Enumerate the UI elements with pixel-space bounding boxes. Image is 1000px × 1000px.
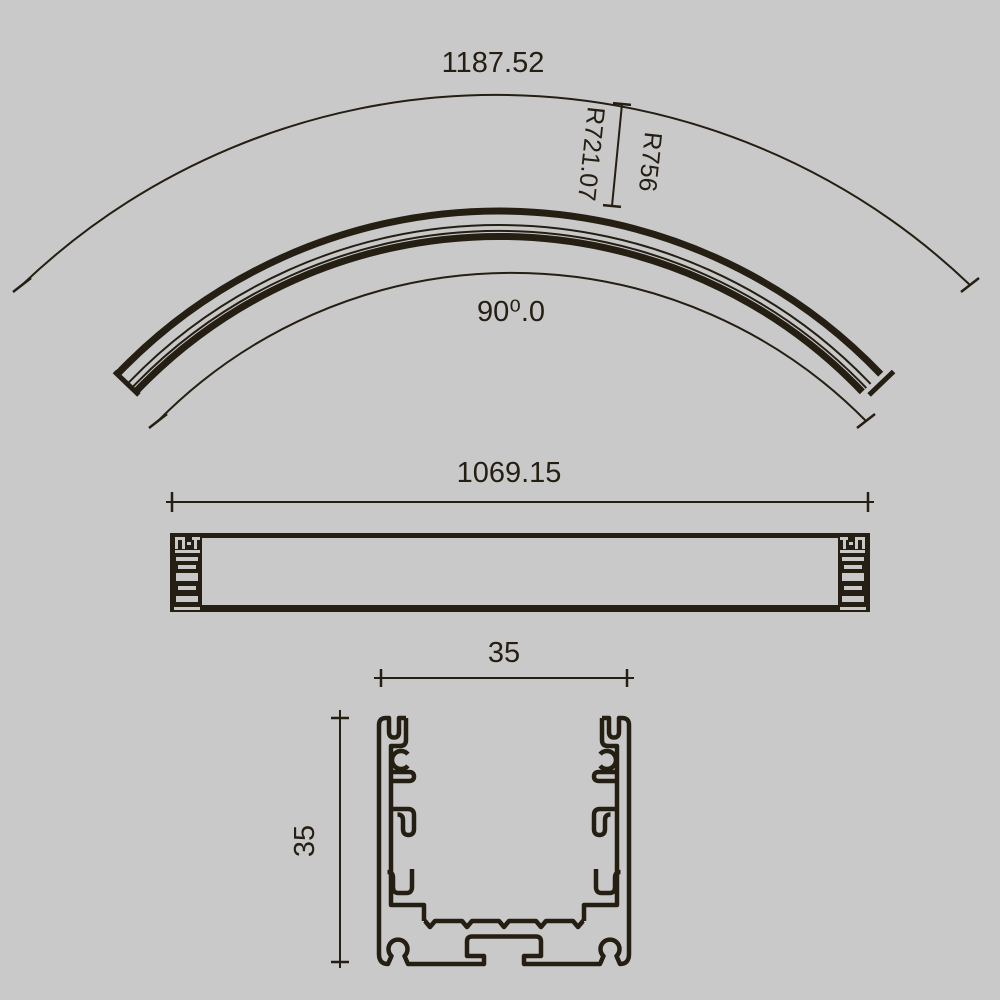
section-inner-floor — [424, 921, 584, 927]
profile-body-outline — [173, 536, 868, 610]
end-connector-right — [838, 533, 870, 612]
screw-boss — [600, 751, 616, 769]
clip-fin — [391, 772, 414, 781]
radius-callout-line — [612, 104, 622, 206]
mount-hook-upper — [594, 809, 617, 835]
outer-dim-tick-left — [13, 278, 31, 292]
arc-length-label: 1187.52 — [442, 47, 545, 79]
technical-drawing-canvas: 1187.52 R756 R721.07 90⁰.0 1069.1 — [0, 0, 1000, 1000]
outer-radius-label: R756 — [633, 131, 667, 193]
end-connector-left — [170, 533, 202, 612]
section-inner-wall-right — [584, 718, 621, 921]
angle-label: 90⁰.0 — [477, 296, 545, 328]
cross-section-view: 35 35 — [289, 637, 634, 968]
angle-dim-tick-left — [149, 414, 167, 428]
width-label: 35 — [488, 637, 520, 669]
mount-hook-upper — [391, 809, 414, 835]
curved-profile-view: 1187.52 R756 R721.07 90⁰.0 — [13, 47, 979, 428]
inner-radius-label: R721.07 — [572, 105, 610, 202]
radius-tick-bottom — [603, 205, 621, 207]
straight-profile-view: 1069.15 — [166, 457, 874, 612]
radius-callout: R756 R721.07 — [572, 103, 667, 207]
height-label: 35 — [289, 825, 321, 857]
band-end-cut-right — [869, 372, 894, 395]
screw-boss — [392, 751, 408, 769]
section-inner-wall-left — [388, 718, 425, 921]
clip-fin — [594, 772, 617, 781]
length-label: 1069.15 — [457, 457, 562, 489]
mount-hook-lower — [388, 869, 413, 893]
outer-dimension-arc — [22, 95, 970, 285]
mount-hook-lower — [596, 869, 621, 893]
